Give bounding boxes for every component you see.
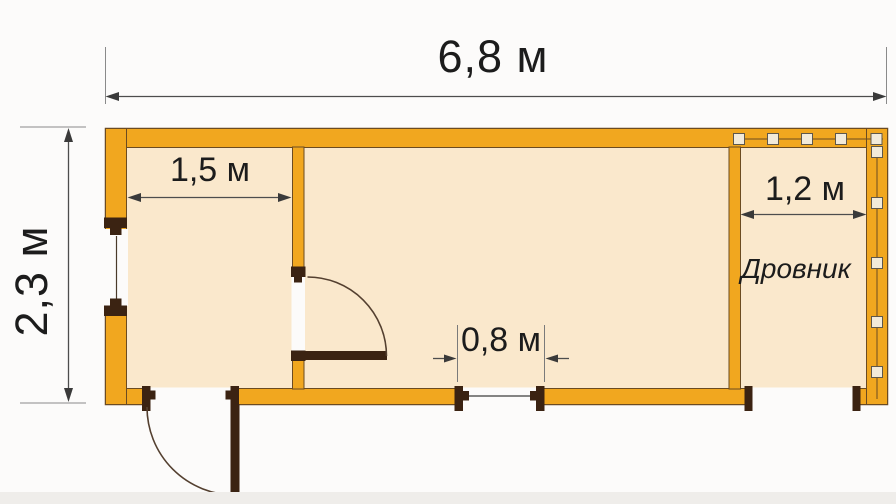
door-jamb-nub: [530, 391, 536, 401]
floor-plan-canvas: 6,8 м 2,3 м 1,5 м 0,8 м 1,2 м Дровник: [0, 0, 896, 504]
door-jamb: [745, 386, 753, 411]
overall-width-label: 6,8 м: [393, 34, 593, 79]
door-jamb: [291, 351, 306, 362]
left-room-width-label: 1,5 м: [130, 153, 290, 187]
window-jamb-nub: [110, 228, 122, 235]
door-jamb: [853, 386, 861, 411]
window-jamb: [104, 218, 127, 229]
post: [836, 134, 847, 145]
window-jamb-nub: [110, 299, 122, 306]
post: [768, 134, 779, 145]
exterior-door: [142, 386, 240, 495]
post: [802, 134, 813, 145]
post: [871, 134, 882, 145]
post: [872, 367, 883, 378]
door-jamb-nub: [151, 391, 156, 400]
arrowhead-up: [64, 128, 73, 142]
arrowhead-down: [64, 388, 73, 402]
doorway-width-label: 0,8 м: [421, 323, 581, 357]
woodshed-entrance: [745, 386, 861, 411]
door-jamb: [455, 386, 464, 411]
door-jamb: [536, 386, 545, 411]
door-jamb-nub: [294, 277, 302, 283]
door-leaf-exterior: [231, 405, 240, 494]
post: [872, 147, 883, 158]
door-swing-arc: [147, 407, 235, 495]
post: [734, 134, 745, 145]
woodshed-name-label: Дровник: [716, 255, 876, 283]
post: [872, 317, 883, 328]
door-jamb: [291, 267, 306, 278]
background-strip: [0, 492, 896, 504]
doorway-opening: [462, 388, 537, 407]
door-jamb-nub: [226, 391, 231, 400]
woodshed-width-label: 1,2 м: [725, 172, 885, 206]
overall-depth-label: 2,3 м: [9, 171, 55, 391]
window-left-wall: [104, 218, 129, 317]
doorway-opening: [150, 388, 232, 407]
arrowhead-left: [106, 92, 120, 101]
arrowhead-right: [873, 92, 887, 101]
doorway-0-8: [455, 386, 545, 411]
doorway-opening: [292, 277, 306, 351]
door-jamb-nub: [463, 391, 469, 401]
door-leaf-interior: [304, 351, 387, 360]
window-opening: [104, 229, 129, 306]
doorway-opening: [753, 388, 853, 407]
window-jamb: [104, 306, 127, 317]
